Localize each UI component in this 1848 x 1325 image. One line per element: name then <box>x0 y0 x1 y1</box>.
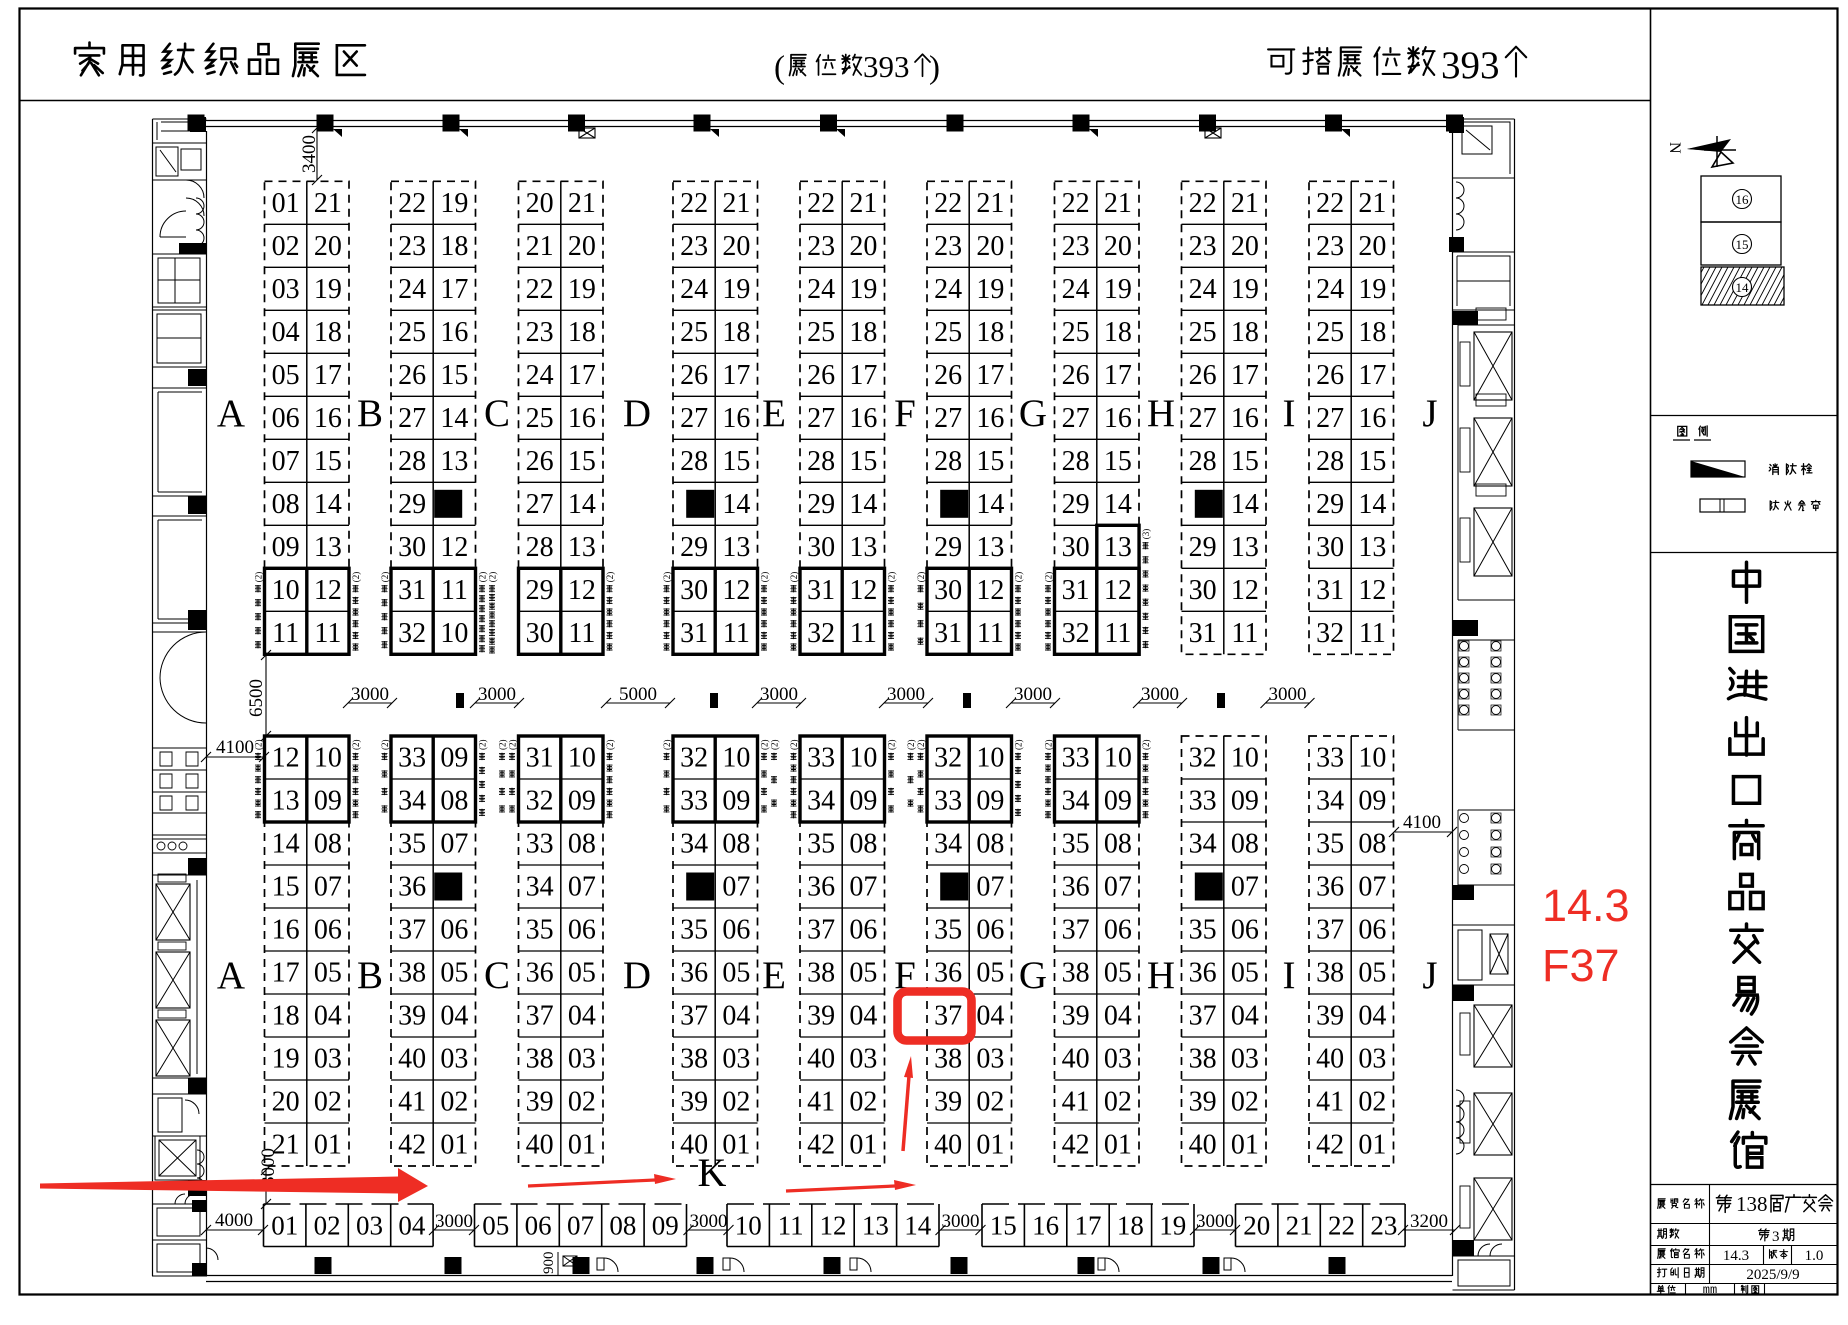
svg-text:42: 42 <box>398 1130 426 1161</box>
svg-text:36: 36 <box>807 872 835 903</box>
svg-text:36: 36 <box>398 872 426 903</box>
svg-text:25: 25 <box>934 317 962 348</box>
svg-text:08: 08 <box>1231 829 1259 860</box>
svg-text:14: 14 <box>1104 489 1132 520</box>
svg-text:32: 32 <box>1316 618 1344 649</box>
svg-text:03: 03 <box>722 1044 750 1075</box>
svg-text:02: 02 <box>440 1087 468 1118</box>
svg-text:F: F <box>894 392 916 435</box>
svg-text:32: 32 <box>807 618 835 649</box>
svg-text:14: 14 <box>904 1211 932 1241</box>
svg-text:14: 14 <box>1358 489 1386 520</box>
svg-text:09: 09 <box>272 532 300 563</box>
svg-text:(2): (2) <box>478 740 488 751</box>
svg-text:11: 11 <box>850 618 877 649</box>
svg-text:38: 38 <box>680 1044 708 1075</box>
svg-text:3400: 3400 <box>299 135 320 173</box>
svg-text:37: 37 <box>398 915 426 946</box>
svg-text:02: 02 <box>849 1087 877 1118</box>
svg-text:11: 11 <box>778 1211 804 1241</box>
svg-text:16: 16 <box>1032 1211 1059 1241</box>
svg-text:26: 26 <box>1189 360 1217 391</box>
svg-text:27: 27 <box>807 403 835 434</box>
svg-text:3000: 3000 <box>1014 684 1052 705</box>
svg-text:23: 23 <box>1316 231 1344 262</box>
svg-text:10: 10 <box>735 1211 762 1241</box>
svg-text:03: 03 <box>1104 1044 1132 1075</box>
svg-text:05: 05 <box>314 958 342 989</box>
svg-text:28: 28 <box>398 446 426 477</box>
svg-text:21: 21 <box>314 188 342 219</box>
svg-text:40: 40 <box>934 1130 962 1161</box>
svg-text:A: A <box>217 954 245 997</box>
svg-text:42: 42 <box>807 1130 835 1161</box>
svg-text:26: 26 <box>807 360 835 391</box>
svg-text:3: 3 <box>1772 1229 1780 1245</box>
svg-text:26: 26 <box>680 360 708 391</box>
svg-text:15: 15 <box>1358 446 1386 477</box>
svg-text:22: 22 <box>1328 1211 1355 1241</box>
svg-text:138: 138 <box>1736 1192 1768 1216</box>
svg-text:36: 36 <box>680 958 708 989</box>
svg-text:07: 07 <box>440 829 468 860</box>
svg-text:31: 31 <box>1062 575 1090 606</box>
svg-text:13: 13 <box>440 446 468 477</box>
svg-text:31: 31 <box>1189 618 1217 649</box>
svg-text:06: 06 <box>272 403 300 434</box>
svg-text:(2): (2) <box>351 740 361 751</box>
svg-text:05: 05 <box>440 958 468 989</box>
svg-text:(2): (2) <box>760 740 770 751</box>
svg-text:13: 13 <box>1231 532 1259 563</box>
svg-text:32: 32 <box>398 618 426 649</box>
svg-text:30: 30 <box>680 575 708 606</box>
svg-text:34: 34 <box>398 786 426 817</box>
svg-text:16: 16 <box>1104 403 1132 434</box>
svg-text:35: 35 <box>934 915 962 946</box>
svg-text:18: 18 <box>849 317 877 348</box>
svg-text:H: H <box>1147 392 1175 435</box>
svg-text:(3): (3) <box>1141 529 1151 540</box>
svg-text:393: 393 <box>863 49 910 84</box>
svg-text:39: 39 <box>1316 1001 1344 1032</box>
svg-text:393: 393 <box>1441 44 1500 87</box>
svg-text:19: 19 <box>722 274 750 305</box>
svg-text:11: 11 <box>272 618 299 649</box>
svg-text:21: 21 <box>1286 1211 1313 1241</box>
svg-text:17: 17 <box>1075 1211 1102 1241</box>
svg-text:08: 08 <box>976 829 1004 860</box>
svg-text:23: 23 <box>934 231 962 262</box>
svg-text:(2): (2) <box>760 572 770 583</box>
svg-text:16: 16 <box>976 403 1004 434</box>
svg-text:15: 15 <box>1736 237 1749 252</box>
svg-text:A: A <box>217 392 245 435</box>
svg-text:01: 01 <box>440 1130 468 1161</box>
svg-text:31: 31 <box>1316 575 1344 606</box>
svg-text:30: 30 <box>1316 532 1344 563</box>
svg-text:39: 39 <box>1189 1087 1217 1118</box>
svg-text:35: 35 <box>807 829 835 860</box>
svg-text:(2): (2) <box>508 740 518 751</box>
svg-text:02: 02 <box>976 1087 1004 1118</box>
svg-text:12: 12 <box>820 1211 847 1241</box>
svg-text:05: 05 <box>568 958 596 989</box>
svg-text:01: 01 <box>1104 1130 1132 1161</box>
svg-text:19: 19 <box>976 274 1004 305</box>
svg-text:23: 23 <box>1062 231 1090 262</box>
svg-text:3000: 3000 <box>760 684 798 705</box>
svg-text:(2): (2) <box>380 740 390 751</box>
svg-text:06: 06 <box>568 915 596 946</box>
svg-text:20: 20 <box>568 231 596 262</box>
svg-text:04: 04 <box>976 1001 1004 1032</box>
svg-text:04: 04 <box>314 1001 342 1032</box>
svg-text:17: 17 <box>314 360 342 391</box>
svg-text:25: 25 <box>680 317 708 348</box>
svg-text:06: 06 <box>1231 915 1259 946</box>
svg-text:05: 05 <box>1104 958 1132 989</box>
svg-text:39: 39 <box>398 1001 426 1032</box>
svg-text:16: 16 <box>440 317 468 348</box>
svg-text:03: 03 <box>272 274 300 305</box>
svg-text:4000: 4000 <box>215 1210 253 1231</box>
svg-text:(2): (2) <box>1044 572 1054 583</box>
svg-text:41: 41 <box>807 1087 835 1118</box>
svg-text:31: 31 <box>807 575 835 606</box>
svg-text:25: 25 <box>398 317 426 348</box>
svg-text:29: 29 <box>1062 489 1090 520</box>
svg-text:12: 12 <box>440 532 468 563</box>
svg-text:38: 38 <box>1189 1044 1217 1075</box>
svg-text:11: 11 <box>441 575 468 606</box>
svg-text:07: 07 <box>976 872 1004 903</box>
svg-text:04: 04 <box>398 1211 426 1241</box>
svg-text:(2): (2) <box>605 740 615 751</box>
svg-text:14: 14 <box>976 489 1004 520</box>
svg-text:J: J <box>1422 392 1437 435</box>
svg-text:13: 13 <box>862 1211 889 1241</box>
svg-text:17: 17 <box>1104 360 1132 391</box>
svg-text:34: 34 <box>934 829 962 860</box>
svg-text:29: 29 <box>934 532 962 563</box>
svg-text:06: 06 <box>849 915 877 946</box>
svg-text:18: 18 <box>1358 317 1386 348</box>
svg-text:02: 02 <box>1231 1087 1259 1118</box>
svg-text:03: 03 <box>356 1211 383 1241</box>
svg-text:12: 12 <box>1358 575 1386 606</box>
svg-text:(2): (2) <box>916 572 926 583</box>
svg-text:39: 39 <box>526 1087 554 1118</box>
svg-text:10: 10 <box>440 618 468 649</box>
svg-text:15: 15 <box>568 446 596 477</box>
svg-text:20: 20 <box>1243 1211 1270 1241</box>
svg-text:F37: F37 <box>1542 940 1620 991</box>
svg-text:36: 36 <box>1316 872 1344 903</box>
svg-text:19: 19 <box>272 1044 300 1075</box>
svg-text:33: 33 <box>526 829 554 860</box>
svg-text:03: 03 <box>314 1044 342 1075</box>
svg-text:19: 19 <box>1104 274 1132 305</box>
svg-text:08: 08 <box>314 829 342 860</box>
svg-text:24: 24 <box>1316 274 1344 305</box>
svg-text:11: 11 <box>1104 618 1131 649</box>
svg-text:24: 24 <box>934 274 962 305</box>
svg-text:11: 11 <box>314 618 341 649</box>
svg-text:I: I <box>1283 392 1296 435</box>
svg-text:23: 23 <box>526 317 554 348</box>
svg-text:24: 24 <box>398 274 426 305</box>
svg-text:18: 18 <box>976 317 1004 348</box>
svg-text:34: 34 <box>1062 786 1090 817</box>
svg-text:20: 20 <box>1231 231 1259 262</box>
svg-text:32: 32 <box>680 743 708 774</box>
svg-text:04: 04 <box>722 1001 750 1032</box>
svg-text:(: ( <box>774 50 785 86</box>
svg-text:13: 13 <box>976 532 1004 563</box>
svg-text:(2): (2) <box>254 740 264 751</box>
svg-text:4100: 4100 <box>216 737 254 758</box>
svg-text:15: 15 <box>976 446 1004 477</box>
svg-text:08: 08 <box>272 489 300 520</box>
svg-text:4100: 4100 <box>1403 812 1441 833</box>
svg-text:17: 17 <box>568 360 596 391</box>
svg-text:38: 38 <box>398 958 426 989</box>
svg-text:20: 20 <box>849 231 877 262</box>
svg-text:23: 23 <box>1370 1211 1397 1241</box>
svg-text:(2): (2) <box>906 740 916 751</box>
svg-text:3000: 3000 <box>351 684 389 705</box>
svg-text:25: 25 <box>1316 317 1344 348</box>
svg-text:3000: 3000 <box>1141 684 1179 705</box>
svg-text:06: 06 <box>1104 915 1132 946</box>
svg-text:22: 22 <box>1316 188 1344 219</box>
svg-text:32: 32 <box>1062 618 1090 649</box>
svg-text:K: K <box>698 1150 727 1195</box>
svg-text:01: 01 <box>271 1211 298 1241</box>
svg-text:C: C <box>484 954 510 997</box>
svg-text:41: 41 <box>1316 1087 1344 1118</box>
svg-text:D: D <box>623 392 651 435</box>
svg-text:35: 35 <box>398 829 426 860</box>
svg-text:14: 14 <box>440 403 468 434</box>
svg-text:18: 18 <box>314 317 342 348</box>
svg-text:31: 31 <box>398 575 426 606</box>
svg-text:14: 14 <box>722 489 750 520</box>
svg-text:08: 08 <box>440 786 468 817</box>
svg-text:30: 30 <box>398 532 426 563</box>
svg-text:14: 14 <box>272 829 300 860</box>
svg-text:31: 31 <box>526 743 554 774</box>
svg-text:01: 01 <box>722 1130 750 1161</box>
svg-text:15: 15 <box>990 1211 1017 1241</box>
svg-text:10: 10 <box>568 743 596 774</box>
svg-text:28: 28 <box>1189 446 1217 477</box>
svg-text:40: 40 <box>398 1044 426 1075</box>
svg-text:22: 22 <box>526 274 554 305</box>
svg-text:E: E <box>762 954 786 997</box>
svg-text:3000: 3000 <box>690 1211 728 1232</box>
svg-text:37: 37 <box>680 1001 708 1032</box>
svg-text:28: 28 <box>807 446 835 477</box>
svg-text:20: 20 <box>526 188 554 219</box>
svg-text:33: 33 <box>680 786 708 817</box>
svg-text:39: 39 <box>807 1001 835 1032</box>
svg-text:28: 28 <box>680 446 708 477</box>
svg-text:14: 14 <box>568 489 596 520</box>
svg-text:28: 28 <box>934 446 962 477</box>
svg-text:17: 17 <box>1231 360 1259 391</box>
svg-text:27: 27 <box>526 489 554 520</box>
svg-text:10: 10 <box>1104 743 1132 774</box>
svg-text:(2): (2) <box>478 572 488 583</box>
svg-text:12: 12 <box>272 743 300 774</box>
svg-text:3000: 3000 <box>1269 684 1307 705</box>
svg-text:08: 08 <box>722 829 750 860</box>
svg-text:34: 34 <box>526 872 554 903</box>
svg-text:25: 25 <box>807 317 835 348</box>
svg-text:(2): (2) <box>789 740 799 751</box>
svg-text:22: 22 <box>807 188 835 219</box>
svg-text:35: 35 <box>1316 829 1344 860</box>
svg-text:1.0: 1.0 <box>1805 1248 1824 1264</box>
svg-text:23: 23 <box>807 231 835 262</box>
svg-text:24: 24 <box>1062 274 1090 305</box>
svg-text:06: 06 <box>440 915 468 946</box>
svg-text:16: 16 <box>722 403 750 434</box>
svg-text:28: 28 <box>1062 446 1090 477</box>
svg-text:36: 36 <box>1062 872 1090 903</box>
svg-text:14: 14 <box>1736 280 1750 295</box>
svg-text:G: G <box>1019 392 1047 435</box>
svg-text:15: 15 <box>1231 446 1259 477</box>
svg-text:13: 13 <box>568 532 596 563</box>
svg-text:14: 14 <box>314 489 342 520</box>
svg-text:12: 12 <box>568 575 596 606</box>
svg-text:20: 20 <box>1104 231 1132 262</box>
svg-text:37: 37 <box>526 1001 554 1032</box>
svg-text:03: 03 <box>976 1044 1004 1075</box>
svg-text:06: 06 <box>722 915 750 946</box>
svg-text:37: 37 <box>807 915 835 946</box>
svg-text:07: 07 <box>849 872 877 903</box>
svg-text:38: 38 <box>934 1044 962 1075</box>
svg-text:04: 04 <box>440 1001 468 1032</box>
svg-text:02: 02 <box>1104 1087 1132 1118</box>
svg-text:29: 29 <box>1189 532 1217 563</box>
svg-text:30: 30 <box>1189 575 1217 606</box>
svg-text:32: 32 <box>1189 743 1217 774</box>
svg-text:38: 38 <box>1062 958 1090 989</box>
svg-text:(2): (2) <box>605 572 615 583</box>
svg-text:22: 22 <box>1062 188 1090 219</box>
svg-text:02: 02 <box>314 1087 342 1118</box>
svg-text:29: 29 <box>807 489 835 520</box>
svg-text:07: 07 <box>722 872 750 903</box>
svg-text:12: 12 <box>314 575 342 606</box>
svg-text:36: 36 <box>526 958 554 989</box>
svg-text:09: 09 <box>652 1211 679 1241</box>
svg-text:34: 34 <box>807 786 835 817</box>
svg-text:34: 34 <box>680 829 708 860</box>
svg-text:900: 900 <box>541 1252 557 1275</box>
svg-text:08: 08 <box>849 829 877 860</box>
svg-text:32: 32 <box>526 786 554 817</box>
svg-text:01: 01 <box>849 1130 877 1161</box>
svg-text:05: 05 <box>1231 958 1259 989</box>
svg-text:04: 04 <box>1358 1001 1386 1032</box>
svg-text:(2): (2) <box>887 572 897 583</box>
svg-text:41: 41 <box>1062 1087 1090 1118</box>
svg-text:26: 26 <box>1062 360 1090 391</box>
svg-text:08: 08 <box>568 829 596 860</box>
svg-text:09: 09 <box>849 786 877 817</box>
svg-text:03: 03 <box>440 1044 468 1075</box>
svg-text:17: 17 <box>440 274 468 305</box>
svg-text:01: 01 <box>1231 1130 1259 1161</box>
svg-text:09: 09 <box>976 786 1004 817</box>
svg-text:01: 01 <box>272 188 300 219</box>
svg-text:G: G <box>1019 954 1047 997</box>
svg-text:mm: mm <box>1703 1283 1717 1297</box>
svg-text:B: B <box>357 954 383 997</box>
svg-text:I: I <box>1283 954 1296 997</box>
svg-text:20: 20 <box>1358 231 1386 262</box>
svg-text:37: 37 <box>1316 915 1344 946</box>
svg-text:14: 14 <box>849 489 877 520</box>
svg-text:29: 29 <box>526 575 554 606</box>
svg-text:6500: 6500 <box>246 679 267 717</box>
svg-text:29: 29 <box>680 532 708 563</box>
svg-text:07: 07 <box>1104 872 1132 903</box>
svg-text:33: 33 <box>1316 743 1344 774</box>
svg-text:13: 13 <box>1358 532 1386 563</box>
svg-text:19: 19 <box>568 274 596 305</box>
svg-text:(2): (2) <box>498 740 508 751</box>
svg-text:40: 40 <box>526 1130 554 1161</box>
svg-text:18: 18 <box>1231 317 1259 348</box>
svg-text:35: 35 <box>1062 829 1090 860</box>
svg-text:03: 03 <box>1358 1044 1386 1075</box>
svg-text:07: 07 <box>568 872 596 903</box>
svg-text:13: 13 <box>1104 532 1132 563</box>
svg-text:14.3: 14.3 <box>1542 880 1630 931</box>
svg-text:15: 15 <box>440 360 468 391</box>
svg-text:06: 06 <box>525 1211 552 1241</box>
svg-text:28: 28 <box>526 532 554 563</box>
svg-text:16: 16 <box>849 403 877 434</box>
svg-text:16: 16 <box>1358 403 1386 434</box>
svg-text:05: 05 <box>1358 958 1386 989</box>
svg-text:(2): (2) <box>488 572 498 583</box>
svg-text:J: J <box>1422 954 1437 997</box>
svg-text:(2): (2) <box>351 572 361 583</box>
svg-text:N: N <box>1666 142 1683 154</box>
svg-text:17: 17 <box>849 360 877 391</box>
svg-text:07: 07 <box>1358 872 1386 903</box>
svg-text:16: 16 <box>272 915 300 946</box>
svg-text:02: 02 <box>568 1087 596 1118</box>
svg-text:40: 40 <box>1316 1044 1344 1075</box>
svg-text:33: 33 <box>1062 743 1090 774</box>
svg-text:05: 05 <box>849 958 877 989</box>
svg-text:09: 09 <box>440 743 468 774</box>
svg-text:32: 32 <box>934 743 962 774</box>
svg-text:15: 15 <box>849 446 877 477</box>
svg-text:(2): (2) <box>380 572 390 583</box>
svg-text:29: 29 <box>1316 489 1344 520</box>
svg-text:08: 08 <box>1104 829 1132 860</box>
